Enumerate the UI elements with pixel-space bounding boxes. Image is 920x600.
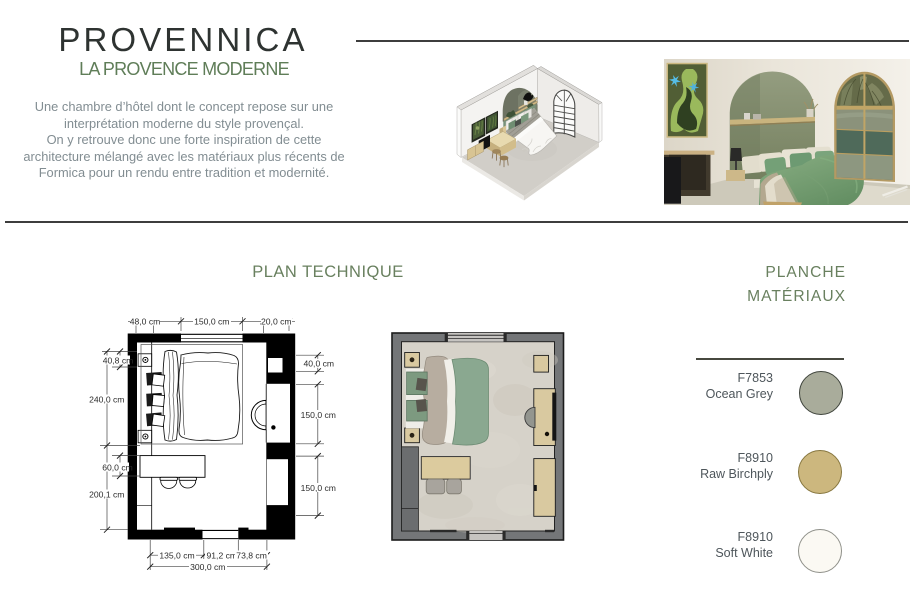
svg-text:135,0 cm: 135,0 cm [159, 550, 194, 560]
svg-text:150,0 cm: 150,0 cm [301, 410, 336, 420]
svg-text:48,0 cm: 48,0 cm [130, 316, 161, 326]
svg-text:200,1 cm: 200,1 cm [89, 489, 124, 499]
svg-text:40,8 cm: 40,8 cm [103, 355, 134, 365]
svg-text:40,0 cm: 40,0 cm [304, 359, 335, 369]
svg-text:300,0 cm: 300,0 cm [190, 562, 225, 572]
svg-text:60,0 cm: 60,0 cm [102, 462, 133, 472]
svg-text:150,0 cm: 150,0 cm [194, 316, 229, 326]
svg-text:20,0 cm: 20,0 cm [261, 316, 292, 326]
svg-text:150,0 cm: 150,0 cm [301, 483, 336, 493]
svg-text:73,8 cm: 73,8 cm [236, 550, 267, 560]
svg-text:240,0 cm: 240,0 cm [89, 394, 124, 404]
svg-text:91,2 cm: 91,2 cm [207, 550, 238, 560]
